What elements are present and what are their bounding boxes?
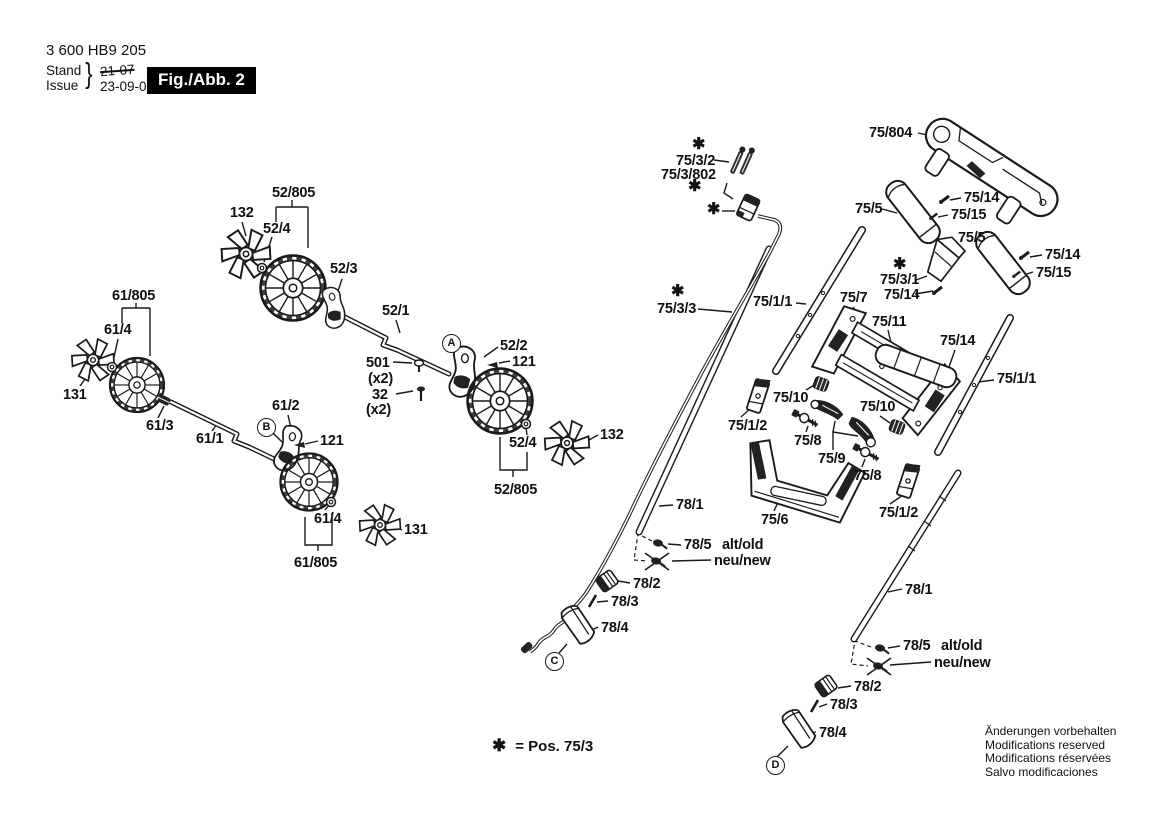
part-label: 75/7 <box>840 291 867 306</box>
washer-52-4-bottom <box>522 420 531 429</box>
callout-marker-b: B <box>257 418 276 437</box>
part-label: 131 <box>404 523 428 538</box>
modifications-notice-line: Modifications réservées <box>985 752 1116 766</box>
part-label: 78/5 <box>903 639 930 654</box>
part-label: (x2) <box>366 403 391 418</box>
part-label: ✱ <box>692 138 705 151</box>
bolt-75-8-lower <box>852 442 881 463</box>
part-label: ✱ <box>893 258 906 271</box>
clamp-75-1-2-left <box>746 376 770 414</box>
part-label: 75/8 <box>794 434 821 449</box>
bracket-61-2 <box>272 424 303 473</box>
part-label: 75/15 <box>951 208 986 223</box>
pin-78-3-left <box>589 595 596 607</box>
callout-marker-a: A <box>442 334 461 353</box>
part-label: 52/805 <box>494 483 537 498</box>
figure-badge: Fig./Abb. 2 <box>147 67 256 94</box>
pin-78-3-right <box>811 700 818 712</box>
part-label: 61/805 <box>112 289 155 304</box>
screw-32 <box>417 387 425 402</box>
lever-75-9-b <box>844 415 881 449</box>
part-label: 61/4 <box>314 512 341 527</box>
clip-78-4-left <box>559 602 597 647</box>
part-label: 75/9 <box>818 452 845 467</box>
screw-75-14-b <box>1019 252 1029 260</box>
part-label: 75/1/2 <box>728 419 767 434</box>
part-label: 78/2 <box>854 680 881 695</box>
part-label: 132 <box>230 206 254 221</box>
frame-75-6 <box>738 436 867 525</box>
document-number: 3 600 HB9 205 <box>46 42 146 59</box>
asterisk-footnote: ✱= Pos. 75/3 <box>492 736 593 756</box>
cable-connector <box>736 194 760 222</box>
screws-75-3-2 <box>729 143 756 178</box>
part-label: 78/3 <box>830 698 857 713</box>
part-label: 75/14 <box>964 191 999 206</box>
part-label: 75/3/1 <box>880 273 919 288</box>
bolt-75-8-upper <box>791 408 820 429</box>
part-label: 78/1 <box>676 498 703 513</box>
wheel-52-805-top <box>261 256 326 321</box>
stand-value-struck: 21-07 <box>100 63 135 78</box>
screw-75-14-a <box>939 196 949 204</box>
part-label: 78/3 <box>611 595 638 610</box>
part-label: 75/10 <box>773 391 808 406</box>
issue-value: 23-09-08 <box>100 79 154 94</box>
part-label: 52/1 <box>382 304 409 319</box>
part-label: ✱ <box>671 285 684 298</box>
nut-75-10-left <box>812 376 829 392</box>
washer-61-4-top <box>108 363 117 372</box>
part-label: ✱ <box>707 203 720 216</box>
part-label: 75/14 <box>884 288 919 303</box>
part-label: 75/10 <box>860 400 895 415</box>
part-label: 52/805 <box>272 186 315 201</box>
part-label: 78/5 <box>684 538 711 553</box>
part-label: 61/4 <box>104 323 131 338</box>
exploded-view-line-art <box>0 0 1169 826</box>
part-label: 75/1/2 <box>879 506 918 521</box>
clip-78-4-right <box>780 706 818 751</box>
part-label: 78/4 <box>601 621 628 636</box>
part-label: 52/4 <box>263 222 290 237</box>
part-label: 78/2 <box>633 577 660 592</box>
part-label: 75/14 <box>940 334 975 349</box>
nut-78-2-right <box>814 674 838 697</box>
part-label: 32 <box>372 388 388 403</box>
part-label: alt/old <box>941 639 982 654</box>
part-label: (x2) <box>368 372 393 387</box>
part-label: alt/old <box>722 538 763 553</box>
part-label: 501 <box>366 356 390 371</box>
callout-marker-d: D <box>766 756 785 775</box>
parts-diagram-page: 3 600 HB9 205 Stand Issue } 21-07 23-09-… <box>0 0 1169 826</box>
washer-52-4-top <box>258 264 267 273</box>
callout-marker-c: C <box>545 652 564 671</box>
part-label: 75/3/3 <box>657 302 696 317</box>
issue-label: Issue <box>46 78 81 93</box>
part-label: neu/new <box>714 554 771 569</box>
screw-78-5-left-new-crossed <box>645 553 669 570</box>
part-label: 75/804 <box>869 126 912 141</box>
modifications-notice-line: Modifications reserved <box>985 739 1116 753</box>
washer-61-4-bottom <box>327 498 336 507</box>
modifications-notice-line: Salvo modificaciones <box>985 766 1116 780</box>
part-label: 75/8 <box>854 469 881 484</box>
modifications-notice-line: Änderungen vorbehalten <box>985 725 1116 739</box>
part-label: 121 <box>512 355 536 370</box>
wheel-61-805-top <box>110 358 164 412</box>
part-label: 131 <box>63 388 87 403</box>
part-label: 61/3 <box>146 419 173 434</box>
part-label: 75/1/1 <box>753 295 792 310</box>
part-label: ✱ <box>688 180 701 193</box>
revision-brace: } <box>85 58 92 91</box>
part-label: 61/1 <box>196 432 223 447</box>
part-label: 121 <box>320 434 344 449</box>
part-label: 75/11 <box>872 315 907 330</box>
axle-52-1 <box>337 313 449 374</box>
part-label: 61/2 <box>272 399 299 414</box>
part-label: 75/5 <box>855 202 882 217</box>
part-label: 78/4 <box>819 726 846 741</box>
part-label: 52/4 <box>509 436 536 451</box>
nut-75-10-right <box>888 419 905 435</box>
lever-75-9-a <box>809 397 845 422</box>
revision-block: Stand Issue <box>46 63 81 93</box>
part-label: 78/1 <box>905 583 932 598</box>
screw-501 <box>415 360 424 372</box>
part-label: 75/15 <box>1036 266 1071 281</box>
modifications-notice: Änderungen vorbehaltenModifications rese… <box>985 725 1116 779</box>
part-label: 75/6 <box>761 513 788 528</box>
asterisk-symbol: ✱ <box>492 736 506 755</box>
screw-78-5-right-new-crossed <box>867 658 891 675</box>
part-label: 75/14 <box>1045 248 1080 263</box>
bracket-52-3 <box>317 285 348 330</box>
part-label: 75/1/1 <box>997 372 1036 387</box>
part-label: 75/5 <box>958 231 985 246</box>
screw-78-5-right <box>874 644 890 654</box>
screw-75-14-c <box>932 287 942 295</box>
part-label: 132 <box>600 428 624 443</box>
part-label: 52/3 <box>330 262 357 277</box>
screw-121-a <box>487 362 498 368</box>
impeller-132-bottom <box>540 419 593 467</box>
impeller-131-bottom <box>356 503 405 547</box>
clamp-75-1-2-right <box>896 461 920 499</box>
stand-label: Stand <box>46 63 81 78</box>
part-label: 52/2 <box>500 339 527 354</box>
asterisk-footnote-text: = Pos. 75/3 <box>515 738 593 755</box>
screw-78-5-left <box>652 539 668 549</box>
part-label: neu/new <box>934 656 991 671</box>
part-label: 61/805 <box>294 556 337 571</box>
